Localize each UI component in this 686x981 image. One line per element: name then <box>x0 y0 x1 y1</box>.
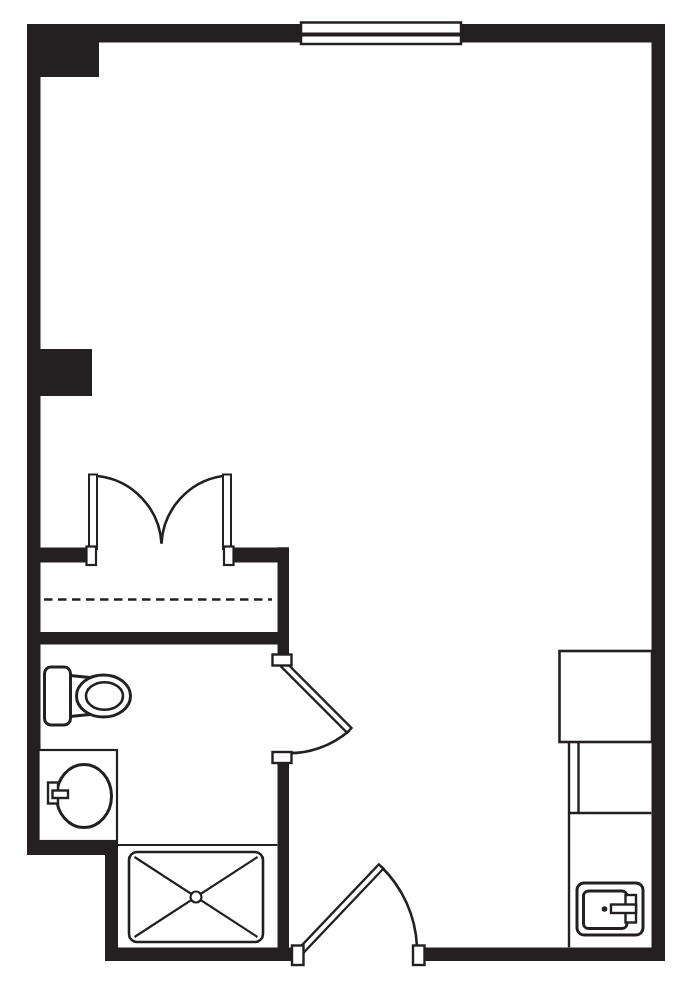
wall-closet-bottom <box>27 632 289 645</box>
closet-door-leaf-right <box>223 475 231 550</box>
wall-bathroom-right-lower <box>278 760 290 961</box>
toilet-bowl-inner <box>86 682 123 710</box>
window-top <box>301 23 461 45</box>
closet-door-swing-arc-left <box>98 476 162 544</box>
closet-double-door <box>87 475 234 566</box>
closet-door-jamb-left <box>87 547 97 566</box>
refrigerator <box>560 651 653 742</box>
floor-plan-page <box>0 0 686 981</box>
entry-door <box>292 864 425 965</box>
bathroom-door <box>273 655 352 764</box>
toilet <box>45 667 131 725</box>
bathroom-door-jamb-top <box>273 655 292 666</box>
bathroom-door-leaf <box>281 662 351 732</box>
entry-door-leaf <box>296 864 383 955</box>
wall-left <box>27 24 41 855</box>
shower-drain <box>191 892 202 903</box>
shower <box>112 845 278 942</box>
sink-faucet-spout <box>53 791 69 799</box>
bathroom-door-jamb-bottom <box>273 752 292 763</box>
wall-bathroom-step-horizontal <box>27 842 118 855</box>
wall-bottom-right <box>418 948 665 962</box>
toilet-tank <box>45 667 71 725</box>
closet-door-swing-arc-right <box>162 476 223 544</box>
kitchenette-sink-drain-dot <box>602 906 608 912</box>
kitchenette-faucet-spout <box>611 905 636 914</box>
entry-door-swing-arc <box>381 867 417 947</box>
wall-left-pilaster <box>27 349 92 396</box>
wall-bathroom-right-upper <box>278 548 290 658</box>
kitchenette <box>560 651 653 948</box>
closet-door-leaf-left <box>89 475 97 550</box>
vanity-sink <box>39 750 118 841</box>
closet-door-jamb-right <box>224 547 234 566</box>
window-mullion <box>302 33 460 37</box>
wall-bathroom-step-vertical <box>105 842 118 961</box>
bathroom-door-swing-arc <box>284 731 350 754</box>
wall-bottom-left <box>105 948 298 962</box>
wall-right <box>652 24 666 961</box>
wall-closet-top-left <box>27 548 87 563</box>
floor-plan-svg <box>0 0 686 981</box>
entry-door-jamb-right <box>413 946 425 966</box>
entry-door-jamb-left <box>292 946 304 966</box>
kitchenette-sink <box>577 883 643 935</box>
